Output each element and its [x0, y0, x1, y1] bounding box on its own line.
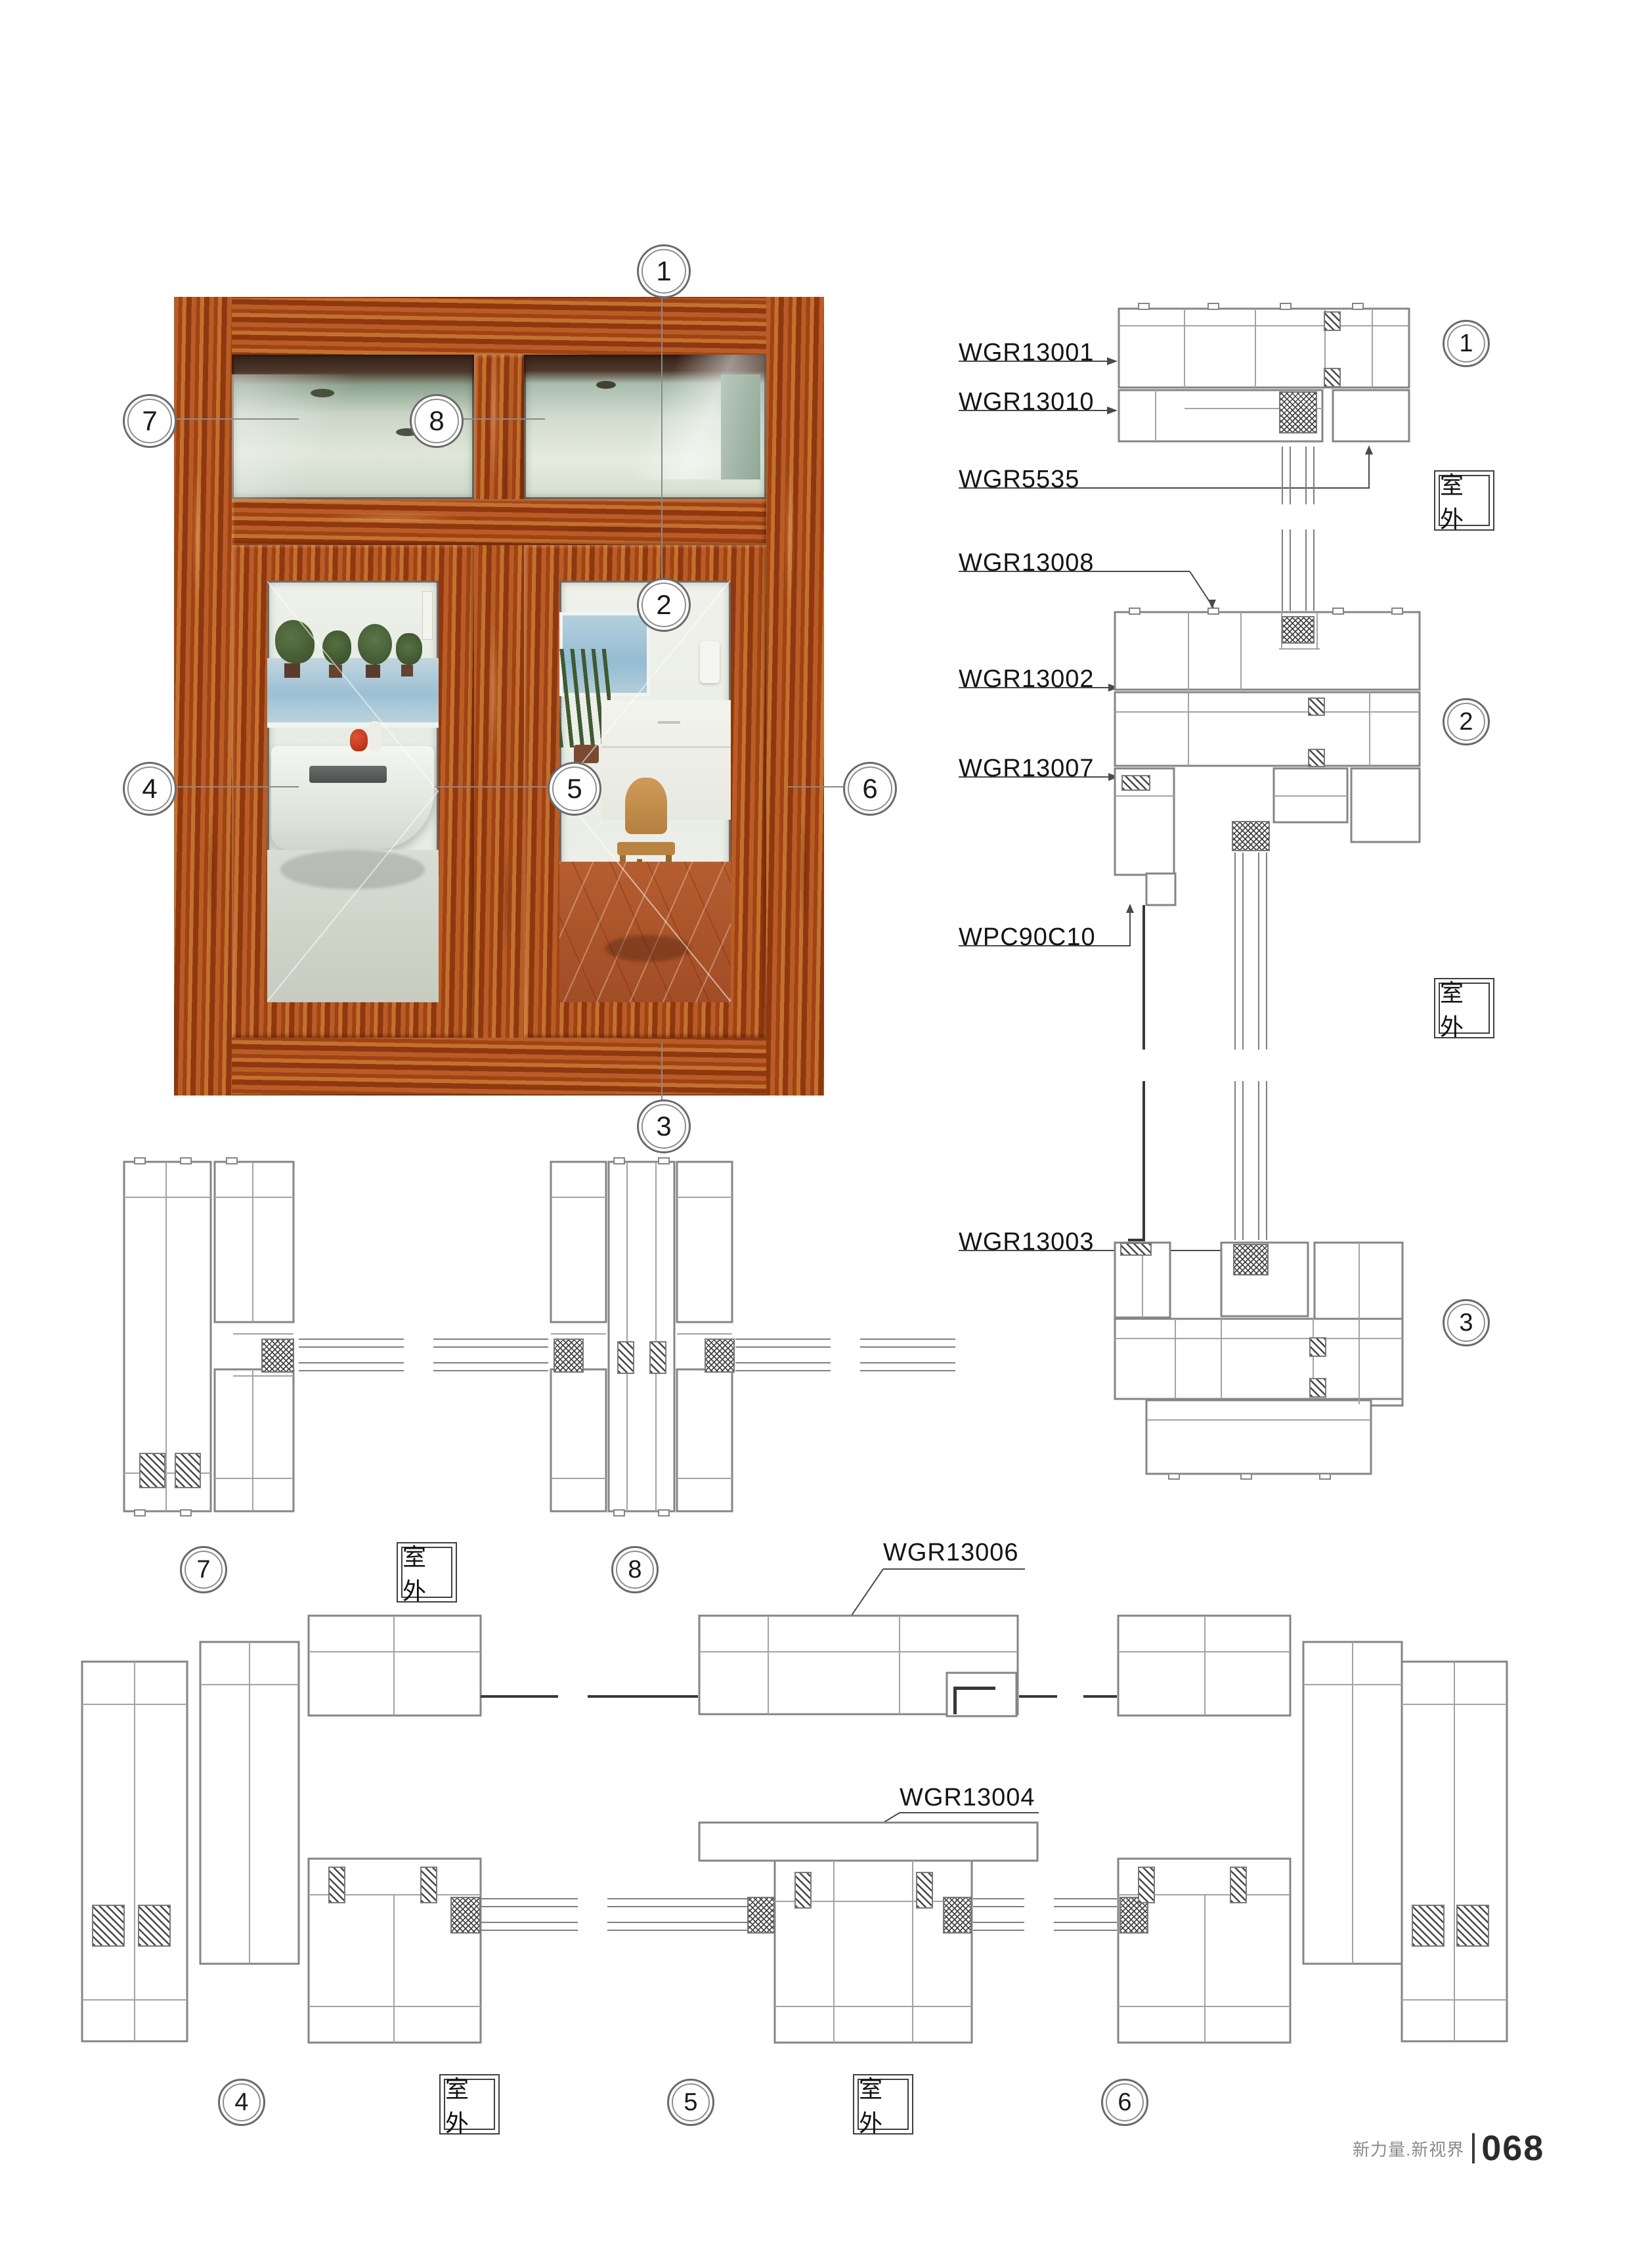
- leader-wgr13006: [883, 1568, 1025, 1570]
- callout-number: 3: [656, 1111, 671, 1142]
- glass-run: [973, 1922, 1024, 1931]
- callout-8: 8: [410, 394, 464, 448]
- thermal-break-hatch: [617, 1341, 634, 1374]
- connector-hook: [953, 1687, 957, 1714]
- transom-glass-right: [524, 355, 766, 499]
- thermal-break-hatch: [175, 1453, 201, 1488]
- thermal-break-hatch: [1309, 1337, 1326, 1357]
- scene-thermometer: [422, 591, 433, 640]
- callout-number: 1: [656, 255, 671, 287]
- callout-drawing-6: 6: [1101, 2079, 1148, 2126]
- callout-5: 5: [548, 762, 601, 816]
- scene-pot: [284, 663, 300, 678]
- callout-number: 1: [1459, 330, 1473, 358]
- thermal-break-hatch: [649, 1341, 666, 1374]
- thermal-break-hatch: [1138, 1867, 1155, 1903]
- part-label-wgr13002: WGR13002: [959, 665, 1095, 694]
- scene-pot: [401, 665, 413, 676]
- glazing-spacer: [261, 1339, 294, 1373]
- window-photo: [174, 297, 824, 1096]
- left-sash-glass: [267, 581, 439, 1002]
- photo-frame-left: [174, 297, 232, 1096]
- scene-handle: [658, 721, 680, 724]
- weatherstrip-line: [1019, 1695, 1057, 1698]
- glass-run: [1054, 1922, 1117, 1931]
- leader-line-3: [661, 1043, 663, 1099]
- scene-spotlight: [311, 389, 334, 397]
- thermal-break-hatch: [916, 1872, 933, 1909]
- glass-run: [973, 1898, 1024, 1907]
- glazing-spacer: [1233, 1244, 1269, 1275]
- scene-shadow: [280, 850, 425, 889]
- glazing-spacer: [747, 1897, 775, 1934]
- glass-run: [1258, 852, 1267, 1050]
- leader-line-5: [435, 786, 548, 787]
- callout-number: 8: [429, 405, 444, 437]
- glass-run: [433, 1339, 548, 1348]
- thermal-break-hatch: [1456, 1905, 1489, 1947]
- transom-rail: [232, 499, 766, 545]
- thermal-break-hatch: [1309, 1378, 1326, 1398]
- leader-wgr5535: [1368, 453, 1370, 487]
- part-label-wgr13004: WGR13004: [900, 1784, 1035, 1812]
- footer-divider: [1472, 2133, 1475, 2163]
- callout-drawing-1: 1: [1443, 320, 1490, 367]
- callout-7: 7: [123, 394, 177, 448]
- thermal-break-hatch: [92, 1905, 125, 1947]
- thermal-break-hatch: [1324, 311, 1341, 331]
- center-stile: [474, 545, 524, 1038]
- scene-chair-back: [625, 778, 667, 834]
- scene-pot: [366, 665, 380, 678]
- callout-6: 6: [843, 762, 897, 816]
- glazing-spacer: [1232, 821, 1270, 851]
- arrow-icon: [1208, 600, 1216, 609]
- outdoor-box-label: 室外: [858, 2079, 909, 2130]
- outdoor-box: 室外: [439, 2074, 500, 2135]
- callout-1: 1: [637, 244, 691, 298]
- glass-run: [1282, 447, 1291, 504]
- callout-3: 3: [637, 1099, 691, 1153]
- part-label-wpc90c10: WPC90C10: [959, 923, 1096, 952]
- glass-run: [1054, 1898, 1117, 1907]
- thermal-break-hatch: [1230, 1867, 1247, 1903]
- glazing-spacer: [705, 1339, 735, 1373]
- section-drawing-4-5-6: [79, 1612, 1510, 2049]
- callout-drawing-2: 2: [1443, 698, 1490, 745]
- callout-number: 4: [234, 2089, 248, 2117]
- page-footer: 新力量.新视界 068: [1353, 2128, 1544, 2169]
- photo-frame-right: [766, 297, 824, 1096]
- callout-number: 7: [142, 405, 157, 437]
- leader-wpc90c10: [1129, 912, 1131, 945]
- leader-line-8: [460, 418, 545, 420]
- callout-number: 3: [1459, 1309, 1473, 1337]
- leader-line-4: [173, 786, 299, 787]
- weatherstrip-line: [1083, 1695, 1117, 1698]
- glazing-spacer: [1279, 391, 1317, 433]
- thermal-break-hatch: [1324, 368, 1341, 387]
- outdoor-box-label: 室外: [1439, 983, 1490, 1034]
- part-label-wgr13003: WGR13003: [959, 1228, 1095, 1256]
- part-label-wgr13007: WGR13007: [959, 755, 1095, 783]
- callout-drawing-7: 7: [180, 1546, 227, 1593]
- outdoor-box: 室外: [853, 2074, 913, 2135]
- weatherstrip-line: [1142, 1081, 1145, 1241]
- leader-line-7: [173, 418, 299, 420]
- outdoor-box: 室外: [397, 1542, 457, 1603]
- thermal-break-hatch: [420, 1867, 437, 1903]
- connector-hook: [953, 1687, 995, 1690]
- callout-drawing-8: 8: [611, 1546, 659, 1593]
- page-number: 068: [1481, 2128, 1544, 2169]
- scene-shape: [601, 746, 731, 748]
- part-label-wgr13010: WGR13010: [959, 388, 1095, 416]
- thermal-break-hatch: [1308, 749, 1325, 767]
- scene-chair-seat: [617, 842, 675, 855]
- arrow-icon: [1365, 445, 1373, 454]
- callout-drawing-4: 4: [218, 2079, 265, 2126]
- glass-run: [299, 1362, 404, 1371]
- thermal-break-hatch: [1308, 697, 1325, 716]
- outdoor-box: 室外: [1434, 470, 1494, 531]
- glass-run: [481, 1898, 578, 1907]
- scene-spotlight: [596, 381, 616, 389]
- scene-jug: [368, 721, 381, 751]
- glass-run: [735, 1339, 831, 1348]
- scene-cooktop: [309, 766, 387, 783]
- glazing-spacer: [1282, 616, 1315, 644]
- part-label-wgr13008: WGR13008: [959, 549, 1095, 577]
- weatherstrip-line: [481, 1695, 558, 1698]
- glass-run: [1305, 529, 1315, 611]
- callout-number: 6: [1118, 2089, 1131, 2117]
- leader-line-1: [661, 294, 663, 578]
- outdoor-box: 室外: [1434, 978, 1494, 1038]
- callout-drawing-5: 5: [667, 2079, 714, 2126]
- section-drawing-8: [548, 1158, 735, 1516]
- callout-4: 4: [123, 762, 177, 816]
- thermal-break-hatch: [794, 1872, 812, 1909]
- glass-run: [433, 1362, 548, 1371]
- catalog-page: 1 7 8 2 4 5 6 3 WGR13001 WGR13010 WGR553…: [0, 0, 1652, 2258]
- callout-number: 8: [628, 1556, 641, 1584]
- glass-run: [299, 1339, 404, 1348]
- footer-tagline: 新力量.新视界: [1353, 2136, 1464, 2161]
- callout-2: 2: [637, 578, 691, 632]
- part-label-wgr13001: WGR13001: [959, 339, 1095, 367]
- callout-number: 2: [656, 589, 671, 621]
- thermal-break-hatch: [139, 1453, 165, 1488]
- glass-run: [735, 1362, 831, 1371]
- scene-red-kettle: [350, 729, 368, 751]
- scene-floor-terracotta: [559, 862, 731, 1002]
- callout-number: 7: [196, 1556, 210, 1584]
- glass-run: [860, 1362, 955, 1371]
- scene-plant: [322, 631, 351, 665]
- scene-phone: [700, 641, 720, 683]
- glazing-spacer: [943, 1897, 972, 1934]
- left-sash: [232, 545, 474, 1038]
- callout-number: 5: [684, 2089, 697, 2117]
- section-drawing-2: [1110, 608, 1425, 908]
- callout-number: 5: [567, 773, 582, 805]
- glass-run: [860, 1339, 955, 1348]
- callout-number: 4: [142, 773, 157, 805]
- section-drawing-1: [1116, 303, 1412, 445]
- outdoor-box-label: 室外: [401, 1547, 452, 1598]
- thermal-break-hatch: [1412, 1905, 1445, 1947]
- thermal-break-hatch: [138, 1905, 171, 1947]
- glazing-spacer: [450, 1897, 481, 1934]
- callout-number: 2: [1459, 708, 1473, 736]
- callout-number: 6: [862, 773, 877, 805]
- weatherstrip-line: [588, 1695, 698, 1698]
- callout-drawing-3: 3: [1443, 1299, 1490, 1346]
- outdoor-box-label: 室外: [1439, 475, 1490, 526]
- scene-shape: [721, 374, 760, 479]
- seal-hatch: [1121, 775, 1150, 791]
- glazing-spacer: [554, 1339, 584, 1373]
- scene-island: [271, 746, 434, 850]
- seal-hatch: [1120, 1243, 1152, 1256]
- glass-run: [1234, 852, 1244, 1050]
- glass-run: [1282, 529, 1291, 611]
- part-label-wgr13006: WGR13006: [883, 1539, 1019, 1567]
- part-label-wgr5535: WGR5535: [959, 466, 1079, 494]
- scene-shadow: [605, 935, 691, 962]
- scene-plant: [275, 620, 315, 663]
- thermal-break-hatch: [328, 1867, 345, 1903]
- outdoor-box-label: 室外: [444, 2079, 495, 2130]
- glass-run: [1258, 1081, 1267, 1240]
- glass-run: [481, 1922, 578, 1931]
- scene-plant: [396, 633, 422, 665]
- glass-run: [1234, 1081, 1244, 1240]
- glass-run: [1305, 447, 1315, 504]
- section-drawing-3: [1110, 1240, 1415, 1478]
- scene-plant: [358, 624, 392, 665]
- leader-line-6: [787, 786, 843, 787]
- weatherstrip-line: [1142, 905, 1145, 1050]
